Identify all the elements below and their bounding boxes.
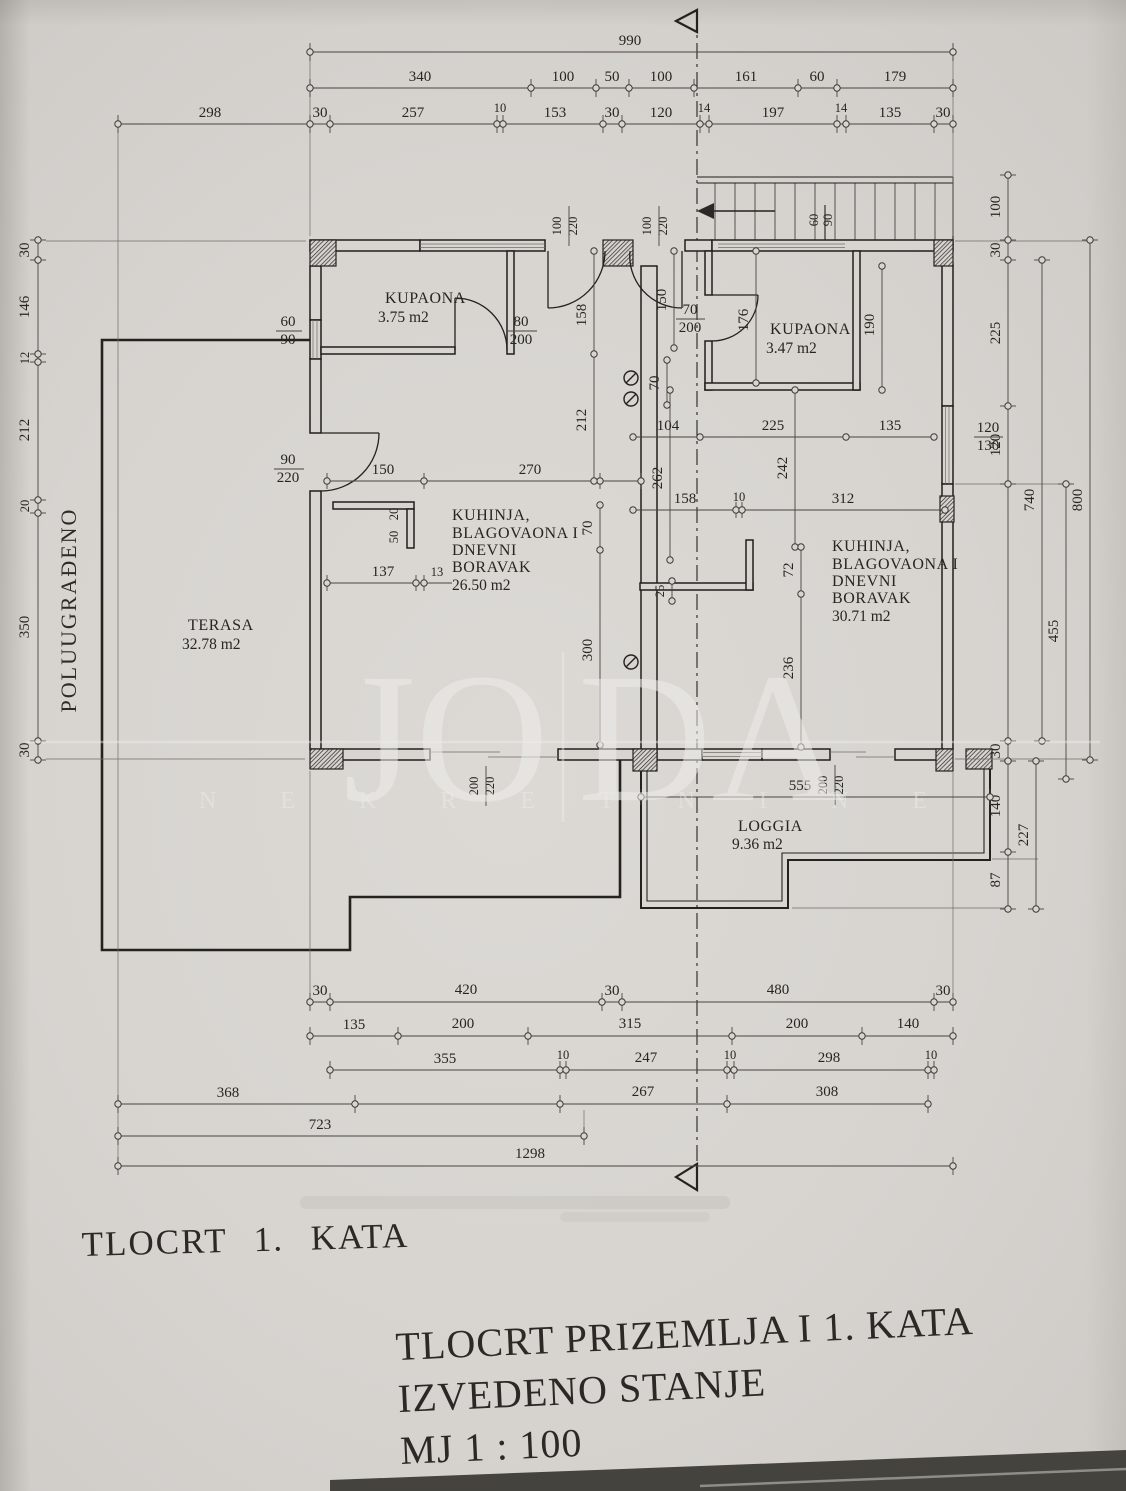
dim-label: 176: [736, 308, 752, 331]
dim-label: 227: [1016, 823, 1032, 846]
dim-label: 100: [640, 217, 654, 236]
dim-label: 200: [786, 1016, 809, 1032]
dim-label: 60: [807, 214, 821, 227]
chain-top-row3: 298 30 257 10 153 30 120 14 197 14 135 3…: [115, 101, 956, 133]
dim-label: 30: [988, 243, 1004, 258]
dim-label: 50: [387, 531, 401, 544]
dim-label: 135: [343, 1017, 366, 1033]
room-area: 3.47 m2: [766, 340, 817, 357]
dimension-chains: 990 340 100 50 100 161 60 179 298 30 257…: [17, 33, 1098, 1175]
dim-label: 197: [762, 105, 785, 121]
dim-label: 120: [977, 420, 1000, 436]
plan-title-left: TLOCRT 1. KATA: [81, 1216, 410, 1264]
dim-label: 10: [557, 1048, 570, 1062]
dim-label: 179: [884, 69, 907, 85]
dim-label: 158: [674, 491, 697, 507]
dim-label: 298: [818, 1050, 841, 1066]
dim-label: 87: [988, 872, 1004, 888]
dim-label: 100: [550, 217, 564, 236]
room-name: KUPAONA: [385, 290, 466, 307]
dim-label: 140: [897, 1016, 920, 1032]
dim-label: 257: [402, 105, 425, 121]
section-line: [676, 10, 697, 1195]
dim-label: 60: [810, 69, 825, 85]
dim-label: 30: [313, 983, 328, 999]
dim-label: 12: [18, 352, 32, 365]
dim-label: 13: [431, 565, 444, 579]
dim-label: 30: [605, 983, 620, 999]
dim-label: 298: [199, 105, 222, 121]
dim-label: 70: [580, 521, 596, 536]
dim-label: 90: [281, 452, 296, 468]
dim-label: 200: [679, 320, 702, 336]
dim-label: 200: [452, 1016, 475, 1032]
room-name: BORAVAK: [832, 590, 911, 607]
dim-label: 25: [653, 585, 667, 598]
section-marker-top-icon: [676, 10, 697, 32]
dim-label: 220: [277, 470, 300, 486]
site-boundary-label: POLUUGRAĐENO: [56, 508, 81, 713]
dim-label: 340: [409, 69, 432, 85]
room-name: TERASA: [188, 617, 254, 634]
dim-label: 104: [657, 418, 680, 434]
dim-label: 990: [619, 33, 642, 49]
dim-label: 60: [281, 314, 296, 330]
dim-label: 10: [724, 1048, 737, 1062]
dim-label: 30: [605, 105, 620, 121]
dim-label: 100: [650, 69, 673, 85]
dim-label: 455: [1046, 620, 1062, 643]
dim-label: 20: [387, 508, 401, 521]
dim-label: 100: [988, 196, 1004, 219]
room-name: DNEVNI: [452, 542, 517, 559]
dim-label: 220: [566, 217, 580, 236]
dim-label: 312: [832, 491, 855, 507]
main-title-line1: TLOCRT PRIZEMLJA I 1. KATA: [395, 1298, 975, 1369]
dim-label: 212: [17, 419, 33, 442]
dim-label: 90: [821, 214, 835, 227]
room-area: 26.50 m2: [452, 577, 511, 594]
dim-label: 161: [735, 69, 758, 85]
dim-label: 262: [650, 467, 666, 490]
dim-label: 225: [988, 322, 1004, 345]
dim-label: 242: [775, 457, 791, 480]
dim-label: 247: [635, 1050, 658, 1066]
room-name: KUHINJA,: [832, 538, 910, 555]
dim-label: 30: [17, 243, 33, 258]
stairs-direction-arrow-icon: [697, 203, 714, 219]
dim-label: 135: [879, 418, 902, 434]
dim-label: 72: [781, 563, 797, 578]
dim-label: 368: [217, 1085, 240, 1101]
section-marker-bottom-icon: [676, 1164, 697, 1190]
room-area: 3.75 m2: [378, 309, 429, 326]
dim-label: 100: [552, 69, 575, 85]
dim-label: 10: [925, 1048, 938, 1062]
dim-label: 50: [605, 69, 620, 85]
dim-label: 120: [650, 105, 673, 121]
chain-top-row2: 340 100 50 100 161 60 179: [307, 69, 956, 97]
dim-label: 158: [574, 304, 590, 327]
dim-label: 14: [698, 101, 711, 115]
dim-label: 190: [862, 314, 878, 337]
dim-label: 212: [574, 409, 590, 432]
room-name: BLAGOVAONA I: [452, 525, 578, 542]
chain-top-990: 990: [307, 33, 956, 61]
dim-label: 480: [767, 982, 790, 998]
staircase: [697, 177, 953, 244]
scanned-floor-plan-page: 990 340 100 50 100 161 60 179 298 30 257…: [0, 0, 1126, 1491]
room-name: BLAGOVAONA I: [832, 556, 958, 573]
main-title-line2: IZVEDENO STANJE: [397, 1359, 767, 1421]
dim-label: 146: [17, 295, 33, 318]
dim-label: 135: [879, 105, 902, 121]
dim-label: 14: [835, 101, 848, 115]
room-name: KUHINJA,: [452, 507, 530, 524]
chain-left: 30 146 12 212 20 350 30: [17, 237, 46, 763]
dim-label: 355: [434, 1051, 457, 1067]
dim-label: 150: [372, 462, 395, 478]
doors: [321, 251, 758, 491]
dim-label: 30: [988, 744, 1004, 759]
dim-label: 30: [17, 743, 33, 758]
dim-label: 90: [281, 332, 296, 348]
dim-label: 150: [654, 289, 670, 312]
dim-label: 153: [544, 105, 567, 121]
watermark-subtitle: NEKRETNINE: [199, 788, 991, 814]
dim-label: 30: [936, 983, 951, 999]
dim-label: 225: [762, 418, 785, 434]
dim-label: 10: [494, 101, 507, 115]
room-area: 32.78 m2: [182, 636, 241, 653]
titles: TLOCRT 1. KATA TLOCRT PRIZEMLJA I 1. KAT…: [81, 1216, 979, 1473]
dim-label: 800: [1070, 489, 1086, 512]
dim-label: 200: [510, 332, 533, 348]
dim-label: 10: [733, 490, 746, 504]
dim-label: 267: [632, 1084, 655, 1100]
dim-label: 30: [313, 105, 328, 121]
dim-label: 220: [656, 217, 670, 236]
room-area: 30.71 m2: [832, 608, 891, 625]
dim-label: 740: [1022, 489, 1038, 512]
chain-right: 100 30 225 120 740 455 800 30 140 87 227…: [974, 172, 1098, 912]
plumbing-riser-icons: [624, 371, 638, 669]
dim-label: 137: [372, 564, 395, 580]
dim-label: 308: [816, 1084, 839, 1100]
dim-label: 130: [977, 438, 1000, 454]
dim-label: 80: [514, 314, 529, 330]
dim-label: 70: [647, 376, 663, 391]
floor-plan-drawing: 990 340 100 50 100 161 60 179 298 30 257…: [0, 0, 1126, 1491]
dim-label: 30: [936, 105, 951, 121]
main-title-line3: MJ 1 : 100: [399, 1420, 583, 1473]
room-name: DNEVNI: [832, 573, 897, 590]
dim-label: 315: [619, 1016, 642, 1032]
dim-label: 20: [18, 500, 32, 513]
room-name: KUPAONA: [770, 321, 851, 338]
dim-label: 420: [455, 982, 478, 998]
chain-bottom: 30 420 30 480 30 135 200 315 200 140 355…: [115, 982, 956, 1175]
dim-label: 1298: [515, 1146, 545, 1162]
dim-label: 350: [17, 616, 33, 639]
dim-label: 723: [309, 1117, 332, 1133]
dim-label: 70: [683, 302, 698, 318]
dim-label: 270: [519, 462, 542, 478]
watermark: JO DA NEKRETNINE: [25, 636, 1100, 841]
room-name: BORAVAK: [452, 559, 531, 576]
